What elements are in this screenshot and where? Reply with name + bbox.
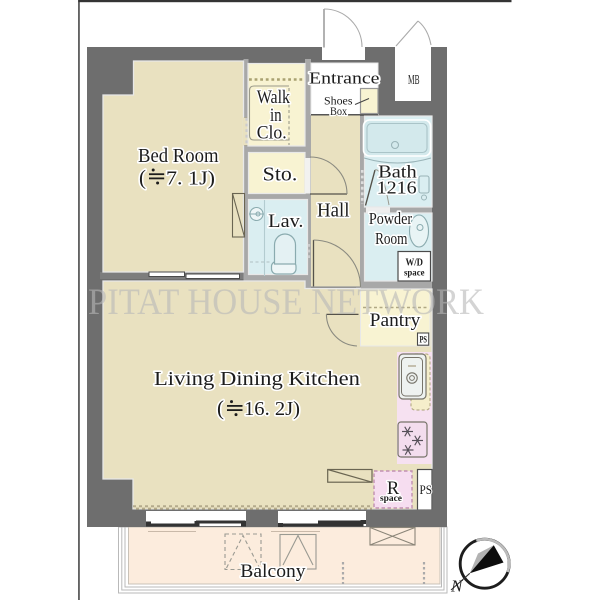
svg-text:Sto.: Sto. xyxy=(263,165,298,186)
svg-text:Balcony: Balcony xyxy=(240,561,306,582)
svg-text:Box: Box xyxy=(330,106,347,118)
svg-text:Hall: Hall xyxy=(317,201,350,222)
svg-text:Clo.: Clo. xyxy=(257,123,287,144)
svg-text:MB: MB xyxy=(408,73,420,88)
svg-text:16. 2J): 16. 2J) xyxy=(244,398,300,420)
svg-text:Entrance: Entrance xyxy=(309,69,380,88)
svg-text:Room: Room xyxy=(375,229,407,248)
svg-text:1216: 1216 xyxy=(377,178,417,198)
svg-text:space: space xyxy=(404,268,425,278)
svg-text:Pantry: Pantry xyxy=(370,311,421,331)
svg-text:space: space xyxy=(380,493,402,503)
svg-text:Lav.: Lav. xyxy=(268,211,303,232)
svg-text:Bed Room: Bed Room xyxy=(138,146,219,167)
svg-text:PS: PS xyxy=(420,482,433,497)
svg-text:Living Dining Kitchen: Living Dining Kitchen xyxy=(154,368,360,390)
svg-text:Powder: Powder xyxy=(369,209,412,228)
svg-text:N: N xyxy=(450,577,464,596)
svg-text:PS: PS xyxy=(420,336,428,346)
svg-text:PITAT HOUSE NETWORK: PITAT HOUSE NETWORK xyxy=(88,282,484,323)
svg-text:(: ( xyxy=(217,396,224,420)
svg-text:(: ( xyxy=(139,166,146,190)
svg-text:7. 1J): 7. 1J) xyxy=(166,168,215,190)
